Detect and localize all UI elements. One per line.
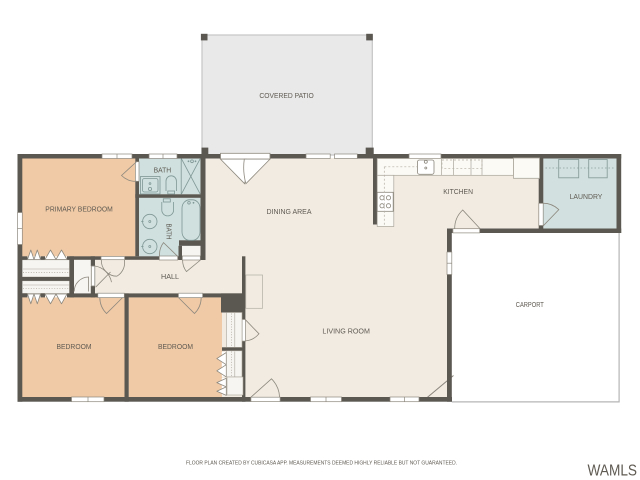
svg-text:LAUNDRY: LAUNDRY: [570, 192, 603, 201]
svg-text:BEDROOM: BEDROOM: [158, 342, 193, 351]
svg-text:BEDROOM: BEDROOM: [57, 342, 92, 351]
svg-text:LIVING ROOM: LIVING ROOM: [322, 326, 370, 335]
svg-text:WAMLS: WAMLS: [588, 463, 638, 480]
svg-text:DINING AREA: DINING AREA: [267, 207, 313, 216]
svg-text:CARPORT: CARPORT: [516, 300, 544, 309]
svg-text:BATH: BATH: [165, 224, 174, 240]
svg-text:COVERED PATIO: COVERED PATIO: [259, 91, 313, 100]
svg-text:PRIMARY BEDROOM: PRIMARY BEDROOM: [45, 205, 113, 214]
svg-text:KITCHEN: KITCHEN: [443, 187, 473, 196]
svg-text:BATH: BATH: [154, 166, 172, 175]
svg-text:FLOOR PLAN CREATED BY CUBICASA: FLOOR PLAN CREATED BY CUBICASA APP. MEAS…: [186, 460, 457, 466]
svg-text:HALL: HALL: [161, 272, 179, 281]
